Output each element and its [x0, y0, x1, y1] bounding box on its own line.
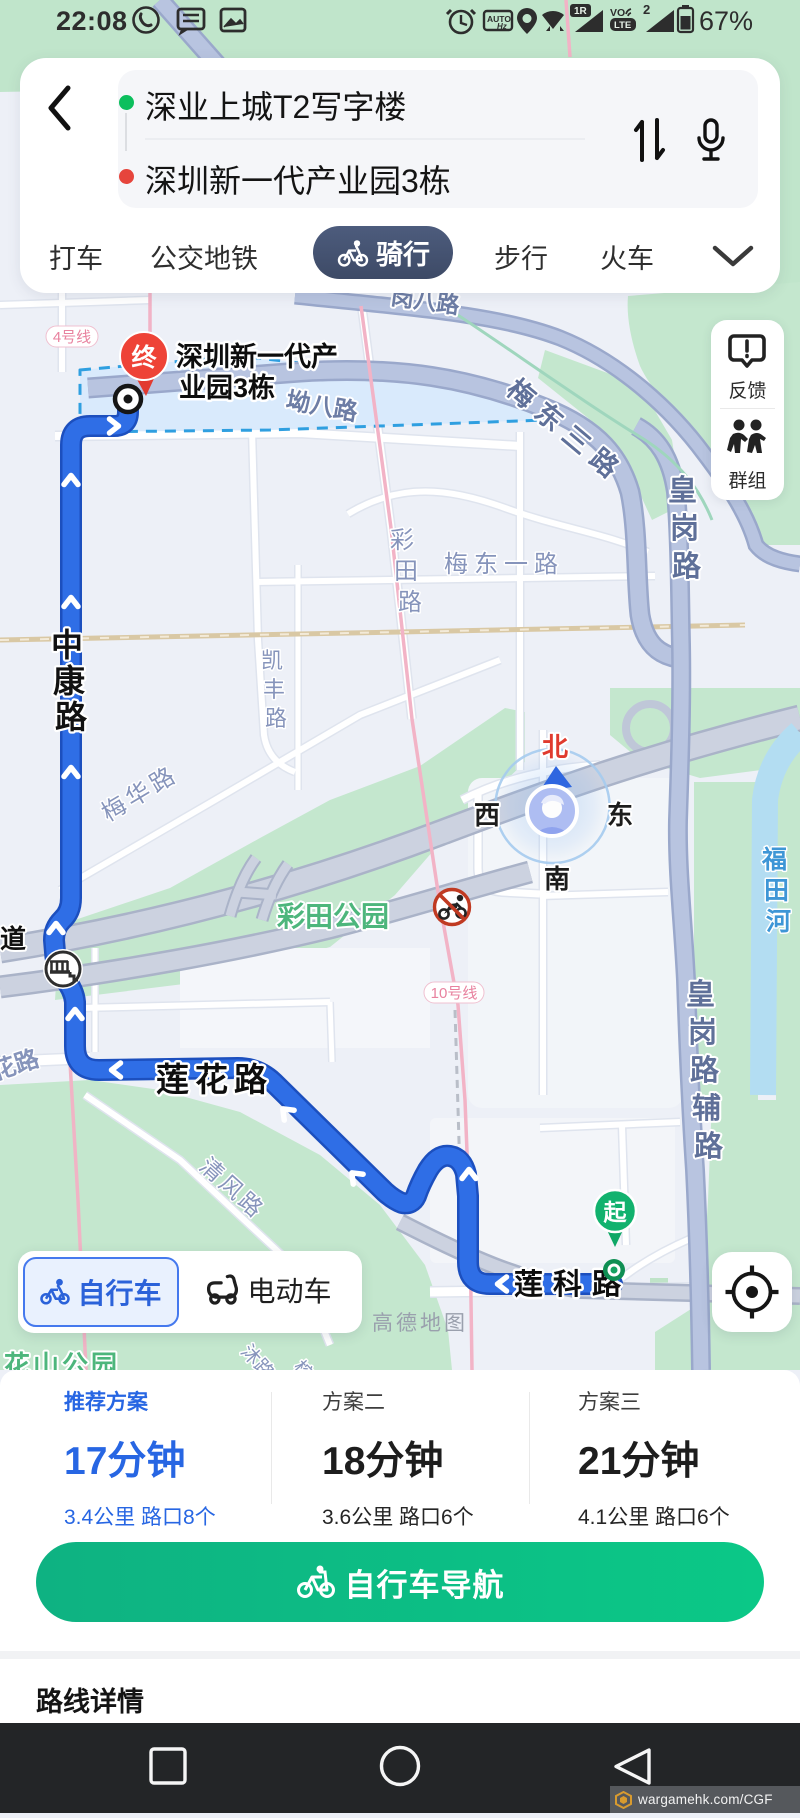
- svg-text:南: 南: [544, 864, 570, 894]
- svg-text:22:08: 22:08: [56, 6, 128, 36]
- svg-text:LTE: LTE: [614, 20, 631, 31]
- svg-text:终: 终: [131, 343, 157, 372]
- svg-text:中康路: 中康路: [51, 627, 88, 735]
- svg-text:起: 起: [604, 1199, 628, 1225]
- svg-text:VO: VO: [610, 7, 625, 19]
- svg-text:2: 2: [643, 2, 650, 17]
- svg-text:10号线: 10号线: [431, 985, 478, 1002]
- svg-text:1R: 1R: [574, 6, 588, 17]
- svg-text:业园3栋: 业园3栋: [179, 372, 275, 403]
- svg-text:东: 东: [607, 800, 633, 830]
- svg-text:67%: 67%: [699, 6, 753, 36]
- svg-text:皇岗路: 皇岗路: [668, 474, 702, 583]
- svg-text:花山公园: 花山公园: [4, 1350, 120, 1370]
- svg-text:梅东一路: 梅东一路: [444, 551, 564, 578]
- svg-text:高德地图: 高德地图: [372, 1312, 468, 1335]
- svg-text:彩田公园: 彩田公园: [277, 901, 389, 932]
- svg-text:4号线: 4号线: [53, 329, 91, 346]
- svg-text:西: 西: [474, 800, 500, 830]
- svg-text:Hz: Hz: [497, 22, 507, 31]
- svg-text:北: 北: [542, 732, 568, 762]
- svg-text:道: 道: [0, 924, 26, 954]
- svg-text:福田河: 福田河: [761, 846, 791, 936]
- svg-text:深圳新一代产: 深圳新一代产: [176, 341, 338, 372]
- svg-text:莲花路: 莲花路: [156, 1061, 273, 1098]
